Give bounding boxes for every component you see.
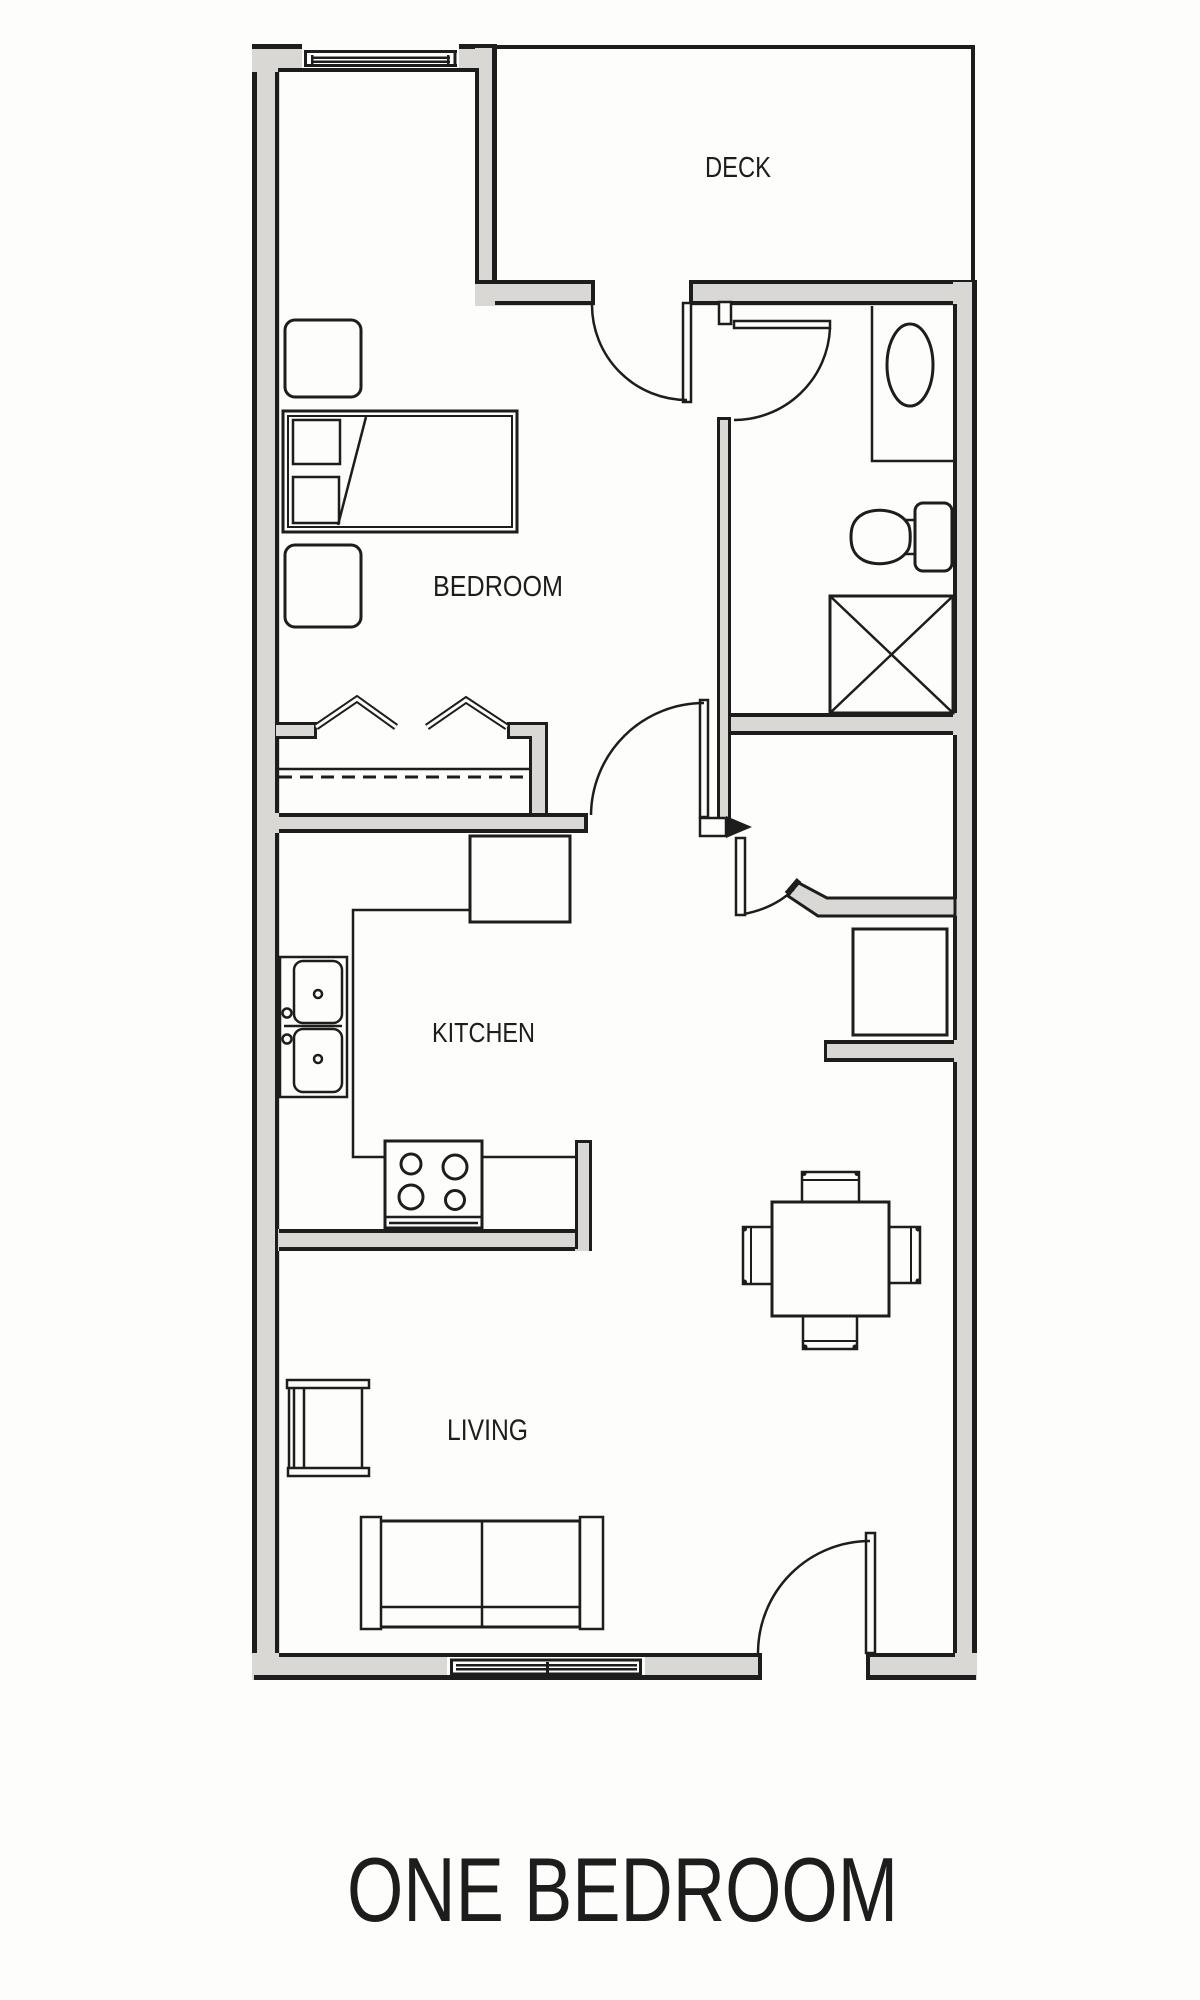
svg-text:DECK: DECK	[705, 152, 772, 184]
svg-text:KITCHEN: KITCHEN	[432, 1017, 535, 1048]
svg-text:LIVING: LIVING	[447, 1414, 528, 1447]
svg-text:ONE BEDROOM: ONE BEDROOM	[347, 1840, 898, 1941]
svg-text:BEDROOM: BEDROOM	[433, 571, 563, 603]
